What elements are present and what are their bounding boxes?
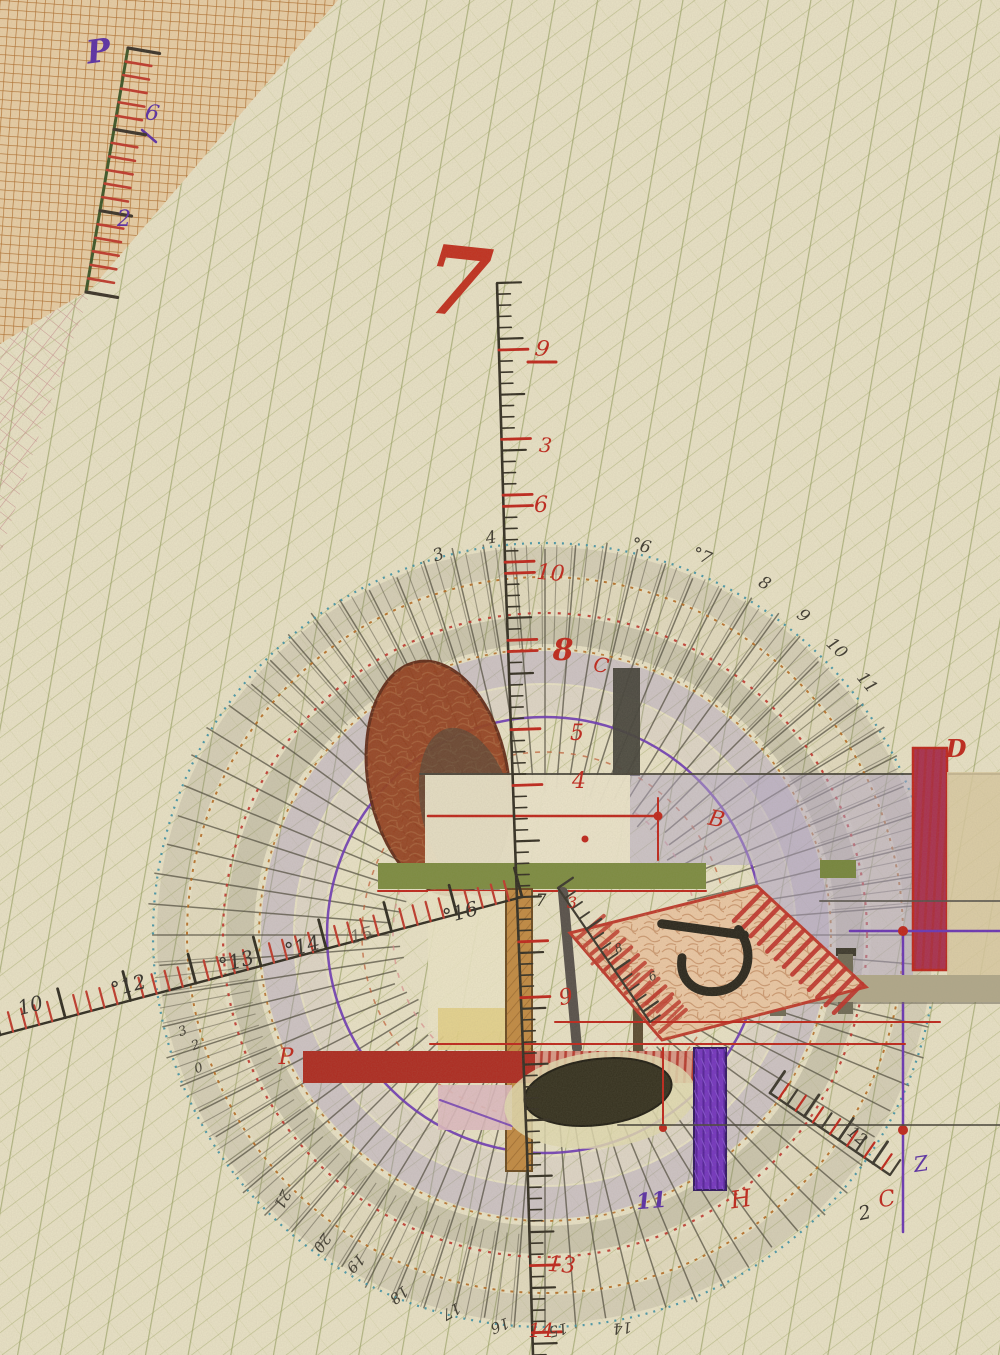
ruler-tick	[521, 1008, 545, 1009]
center-num-7: 7	[536, 891, 547, 911]
ruler-tick	[522, 1019, 535, 1020]
letter-d-red: D	[945, 734, 967, 763]
ruler-tick	[499, 349, 528, 350]
red-band-solid	[303, 1051, 535, 1083]
ruler-tick	[502, 450, 526, 451]
red-node	[654, 812, 663, 821]
ruler-tick	[507, 617, 531, 618]
ruler-tick	[531, 1287, 555, 1288]
ruler-tick	[518, 930, 531, 931]
ruler-tick	[520, 964, 533, 965]
ruler-tick	[521, 997, 550, 998]
tan-right-area	[947, 772, 1000, 1002]
ruler-tick	[508, 651, 537, 652]
ruler-tick	[528, 1176, 552, 1177]
purple-bar-texture	[694, 1048, 726, 1190]
red-dot	[582, 836, 589, 843]
ruler-num-10: 10	[536, 560, 566, 587]
ruler-tick	[515, 841, 539, 842]
ruler-tick	[526, 1120, 550, 1121]
ruler-tick	[529, 1231, 553, 1232]
arc-num-14: 14	[612, 1318, 633, 1338]
ruler-tick	[520, 986, 533, 987]
ruler-num-3: 3	[538, 433, 553, 458]
num-11-purple: 11	[635, 1187, 668, 1216]
artwork-canvas: P627936108C549131410°12°13°1415°1634°6°7…	[0, 0, 1000, 1355]
ruler-num-4: 4	[571, 769, 586, 794]
ruler-tick	[502, 439, 531, 440]
ruler-tick	[505, 561, 534, 562]
ruler-tick	[497, 282, 521, 283]
ruler-tick	[505, 572, 534, 573]
artwork-page: P627936108C549131410°12°13°1415°1634°6°7…	[0, 0, 1000, 1355]
dark-gray-bar	[613, 668, 640, 776]
green-bar	[378, 863, 706, 889]
ruler-tick	[519, 952, 543, 953]
ruler-tick	[533, 1343, 557, 1344]
letter-p-red: P	[278, 1045, 295, 1070]
ruler-tick	[499, 338, 523, 339]
ruler-tick	[500, 394, 524, 395]
ruler-tick	[520, 975, 533, 976]
ruler-tick	[523, 1042, 536, 1043]
ruler-tick	[525, 1098, 538, 1099]
ruler-tick	[508, 639, 537, 640]
crimson-bar-texture	[913, 748, 947, 970]
digit-2-topleft: 2	[116, 207, 131, 232]
ruler-tick	[526, 1131, 539, 1132]
ruler-tick	[519, 941, 548, 942]
ruler-num-13: 13	[547, 1252, 577, 1279]
small-green-rect	[820, 860, 856, 878]
ruler-tick	[503, 494, 532, 495]
ruler-tick	[524, 1086, 537, 1087]
ruler-tick	[525, 1109, 538, 1110]
red-node-2	[898, 926, 908, 936]
ruler-tick	[527, 1142, 540, 1143]
ruler-tick	[518, 919, 531, 920]
ruler-num-5: 5	[570, 721, 584, 746]
center-num-3: 3	[567, 893, 577, 912]
ruler-tick	[522, 1031, 535, 1032]
ruler-tick	[503, 506, 532, 507]
ruler-tick	[523, 1053, 536, 1054]
ruler-num-6: 6	[534, 493, 548, 518]
ruler-tick	[517, 908, 530, 909]
big-red-seven: 7	[420, 224, 497, 341]
red-node-3	[898, 1125, 908, 1135]
ruler-tick	[509, 673, 533, 674]
ruler-num-8: 8	[552, 633, 574, 668]
ruler-tick	[513, 785, 542, 786]
ruler-tick	[511, 729, 540, 730]
ruler-tick	[524, 1075, 537, 1076]
ruler-tick	[524, 1064, 548, 1065]
pink-rect	[438, 1085, 512, 1130]
